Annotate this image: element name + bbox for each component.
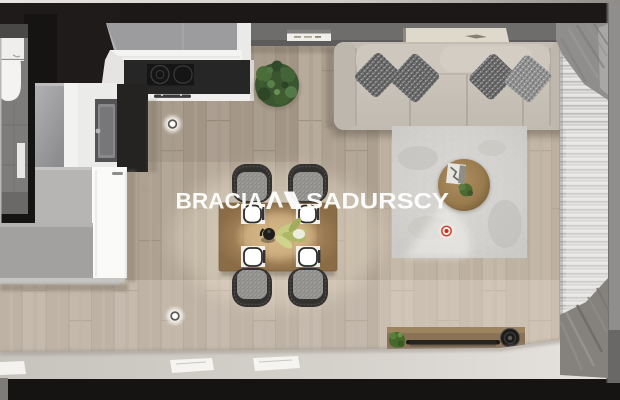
svg-text:BRACIA: BRACIA [176,189,264,214]
svg-text:SADURSCY: SADURSCY [306,189,449,214]
